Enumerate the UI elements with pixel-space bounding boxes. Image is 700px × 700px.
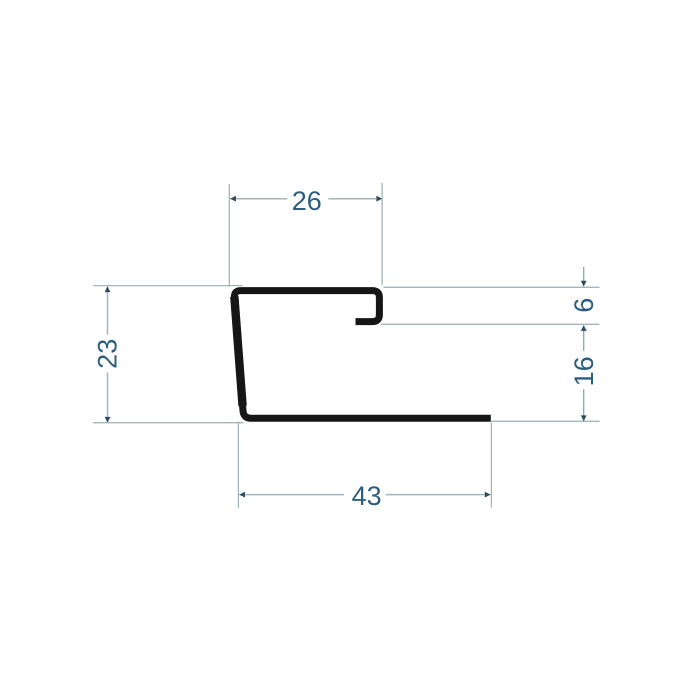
svg-text:16: 16: [569, 356, 599, 386]
svg-text:6: 6: [569, 298, 599, 313]
svg-text:23: 23: [93, 339, 123, 369]
svg-text:43: 43: [352, 481, 382, 511]
svg-text:26: 26: [292, 186, 322, 216]
